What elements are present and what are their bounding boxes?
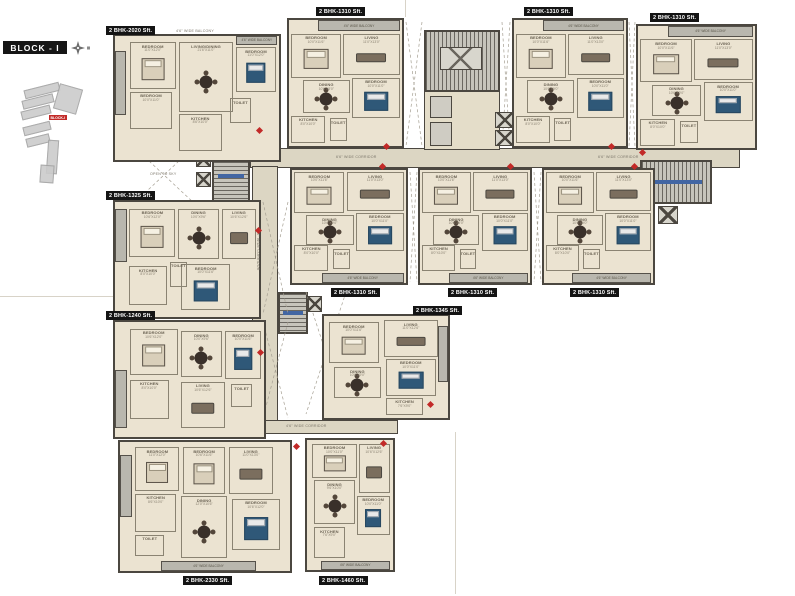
room: BEDROOM10'0"X11'0"	[605, 213, 651, 251]
balcony: 4'6" WIDE BALCONY	[668, 26, 752, 37]
room: KITCHEN8'0"X10'0"	[640, 119, 675, 146]
apartment-unit: 4'6" WIDE BALCONYBEDROOM10'0"X11'6"LIVIN…	[636, 24, 757, 150]
dimension-text: OPEN TO SKY	[150, 172, 176, 176]
unit-area-label: 2 BHK-1310 Sft.	[448, 288, 497, 297]
sofa-icon	[360, 190, 390, 199]
room: LIVING11'0"X13'0"	[568, 34, 624, 76]
guide-line	[405, 0, 406, 17]
bed-icon	[617, 226, 640, 243]
bed-icon	[398, 372, 423, 389]
room-name: TOILET	[171, 264, 186, 269]
balcony: 4'6" WIDE BALCONY	[322, 273, 404, 283]
bed-icon	[304, 49, 329, 69]
bed-icon	[364, 92, 388, 110]
setback-dashed-lines	[406, 22, 422, 146]
room: KITCHEN7'6"X9'0"	[314, 527, 345, 558]
room-dim: 10'0"X11'0"	[326, 451, 343, 454]
room-dim: 8'0"X10'0"	[300, 123, 315, 126]
room-dim: 8'0"X10'0"	[555, 252, 570, 255]
room-dim: 11'0"X13'0"	[715, 47, 732, 50]
room: TOILET	[230, 98, 251, 123]
bed-icon	[246, 63, 265, 83]
unit-area-label: 2 BHK-2330 Sft.	[183, 576, 232, 585]
room-dim: 10'0"X11'6"	[308, 41, 325, 44]
unit-area-label: 2 BHK-2020 Sft.	[106, 26, 155, 35]
room-dim: 10'0"X11'0"	[402, 366, 419, 369]
room: BEDROOM10'0"X11'6"	[225, 331, 261, 379]
sofa-icon	[239, 469, 262, 480]
bed-icon	[716, 96, 741, 114]
room-dim: 10'0"X11'6"	[532, 41, 549, 44]
room-dim: 10'6"X12'0"	[145, 336, 162, 339]
room: KITCHEN8'0"X10'0"	[422, 245, 455, 271]
room-dim: 8'0"X10'0"	[431, 252, 446, 255]
bed-icon	[558, 186, 582, 205]
sofa-icon	[708, 58, 739, 67]
room: BEDROOM10'0"X11'0"	[577, 78, 624, 118]
dining-table-icon	[195, 351, 208, 364]
room: TOILET	[135, 535, 164, 556]
room-dim: 8'6"X10'0"	[193, 121, 208, 124]
room: BEDROOM11'0"X12'0"	[236, 47, 275, 92]
room-dim: 11'0"X12'0"	[144, 49, 161, 52]
room: BEDROOM10'0"X11'0"	[352, 78, 399, 118]
room-dim: 12'0"X10'6"	[195, 503, 212, 506]
unit-area-label: 2 BHK-1345 Sft.	[413, 306, 462, 315]
block-title-ribbon: BLOCK - I	[3, 41, 67, 54]
room: KITCHEN8'0"X10'0"	[516, 116, 550, 144]
stair-mid-landing	[650, 180, 702, 184]
room-dim: 11'0"X12'6"	[402, 327, 419, 330]
room: BEDROOM10'6"X11'6"	[183, 447, 226, 493]
room-dim: 10'6"X9'0"	[543, 88, 558, 91]
room-dim: 10'6"X12'6"	[194, 389, 211, 392]
dining-table-icon	[192, 232, 205, 245]
dining-table-icon	[670, 96, 683, 109]
setback-dashed-lines	[410, 172, 417, 282]
unit-area-label: 2 BHK-1325 Sft.	[106, 191, 155, 200]
room-dim: 21'6"X11'0"	[197, 49, 214, 52]
utility-cell	[430, 122, 452, 146]
room: TOILET	[460, 249, 477, 269]
site-plan-highlight: BLOCK-I	[49, 115, 67, 120]
balcony-label: 4'6" WIDE BALCONY	[596, 276, 627, 280]
room-dim: 11'0"X13'0"	[615, 179, 632, 182]
dining-table-icon	[450, 226, 463, 239]
room-name: TOILET	[331, 121, 346, 126]
room: BEDROOM10'6"X12'0"	[130, 329, 178, 375]
room-dim: 10'6"X12'6"	[365, 451, 382, 454]
bed-icon	[234, 348, 252, 370]
apartment-unit: 4'6" WIDE BALCONYBEDROOM10'0"X11'6"LIVIN…	[418, 168, 532, 285]
room-dim: 10'0"X11'6"	[197, 271, 214, 274]
room-dim: 8'6"X10'0"	[148, 501, 163, 504]
room-dim: 10'6"X12'0"	[144, 216, 161, 219]
room: DINING10'6"X9'0"	[652, 85, 701, 117]
room: DINING10'0"X9'0"	[334, 367, 381, 398]
setback-dashed-lines	[534, 172, 541, 282]
room-dim: 11'0"X13'0"	[587, 41, 604, 44]
apartment-unit: BEDROOM10'6"X12'0"DINING10'0"X9'6"LIVING…	[113, 200, 261, 319]
room: BEDROOM10'0"X11'0"	[356, 213, 404, 251]
room-dim: 10'0"X11'0"	[371, 220, 388, 223]
apartment-unit: 4'6" WIDE BALCONYBEDROOM11'0"X12'0"LIVIN…	[113, 34, 281, 162]
room-dim: 10'0"X11'0"	[592, 85, 609, 88]
apartment-unit: BEDROOM10'6"X12'0"DINING10'0"X9'6"BEDROO…	[113, 320, 266, 439]
balcony: 4'6" WIDE BALCONY	[572, 273, 650, 283]
room: BEDROOM10'0"X11'0"	[482, 213, 528, 251]
room-dim: 11'0"X13'0"	[492, 179, 509, 182]
room: KITCHEN8'0"X10'0"	[130, 380, 169, 419]
setback-dashed-lines	[263, 322, 288, 418]
bed-icon	[244, 517, 268, 541]
sofa-icon	[191, 403, 214, 414]
room-dim: 8'0"X10'0"	[304, 252, 319, 255]
room-dim: 10'0"X11'0"	[720, 89, 737, 92]
room-name: TOILET	[460, 252, 475, 257]
dining-table-icon	[544, 93, 557, 106]
balcony-label: 4'6" WIDE BALCONY	[193, 564, 224, 568]
room: TOILET	[170, 262, 187, 287]
bed-icon	[142, 345, 166, 366]
room: TOILET	[330, 118, 347, 141]
balcony-label: 4'6" WIDE BALCONY	[242, 38, 273, 42]
unit-area-label: 2 BHK-1240 Sft.	[106, 311, 155, 320]
sofa-icon	[230, 232, 248, 244]
stair-mid-landing	[218, 174, 244, 178]
bed-icon	[368, 226, 392, 243]
balcony	[438, 326, 448, 382]
site-plan-building	[39, 165, 54, 184]
room: LIVING11'0"X13'0"	[596, 172, 651, 210]
lift	[658, 206, 678, 224]
room-dim: 11'0"X12'0"	[149, 454, 166, 457]
room-dim: 8'0"X10'0"	[525, 123, 540, 126]
room: BEDROOM10'0"X11'6"	[516, 34, 565, 78]
dining-table-icon	[320, 93, 333, 106]
room-dim: 10'0"X9'6"	[194, 338, 209, 341]
room: KITCHEN8'0"X10'0"	[129, 266, 166, 305]
room-dim: 10'0"X11'0"	[143, 99, 160, 102]
block-title: BLOCK - I	[10, 43, 59, 53]
room: BEDROOM10'6"X12'0"	[232, 499, 280, 551]
unit-area-label: 2 BHK-1310 Sft.	[570, 288, 619, 297]
apartment-unit: 4'6" WIDE BALCONYBEDROOM10'0"X11'6"LIVIN…	[512, 18, 628, 148]
bed-icon	[323, 456, 345, 471]
dimension-text: 6'6" WIDE CORRIDOR	[336, 155, 377, 159]
room-dim: 10'6"X9'0"	[669, 92, 684, 95]
room: KITCHEN7'6"X9'0"	[386, 398, 423, 415]
room: BEDROOM10'0"X11'0"	[386, 359, 436, 396]
room: BEDROOM10'0"X11'6"	[546, 172, 594, 213]
plan-layer: 4'6" WIDE BALCONYBEDROOM11'0"X12'0"LIVIN…	[0, 0, 795, 596]
stair-landing-x	[440, 47, 482, 70]
dimension-text: 4'6" WIDE BALCONY	[176, 29, 214, 33]
sofa-icon	[396, 337, 425, 345]
room-dim: 10'0"X11'0"	[365, 503, 382, 506]
room-dim: 8'0"X10'0"	[142, 387, 157, 390]
apartment-unit: 4'6" WIDE BALCONYBEDROOM10'0"X11'6"LIVIN…	[287, 18, 404, 148]
room-dim: 8'0"X10'0"	[650, 126, 665, 129]
dimension-text: 6'6" WIDE CORRIDOR	[256, 230, 260, 271]
utility-cell	[430, 96, 452, 118]
dining-table-icon	[198, 525, 211, 538]
room: DINING10'6"X9'0"	[306, 215, 354, 244]
room-dim: 11'0"X13'0"	[367, 179, 384, 182]
room-name: TOILET	[234, 387, 249, 392]
room-dim: 7'6"X9'0"	[323, 534, 337, 537]
room-dim: 10'0"X11'6"	[235, 338, 252, 341]
bed-icon	[653, 54, 679, 74]
room: LIVING11'0"X13'0"	[343, 34, 400, 76]
room: DINING10'6"X9'0"	[557, 215, 603, 244]
room-dim: 9'6"X10'0"	[327, 487, 342, 490]
bed-icon	[365, 509, 381, 527]
room: BEDROOM10'0"X11'0"	[357, 496, 390, 535]
sofa-icon	[581, 53, 611, 62]
unit-area-label: 2 BHK-1460 Sft.	[319, 576, 368, 585]
room-name: TOILET	[233, 101, 248, 106]
setback-dashed-lines	[629, 22, 635, 146]
room: LIVING10'6"X12'6"	[181, 382, 226, 428]
room: BEDROOM10'0"X11'6"	[294, 172, 344, 213]
room: LIVING11'0"X13'0"	[229, 447, 273, 493]
bed-icon	[194, 280, 218, 301]
bed-icon	[434, 186, 458, 205]
room: KITCHEN8'0"X10'0"	[546, 245, 579, 271]
room-dim: 10'0"X9'6"	[191, 216, 206, 219]
room-name: TOILET	[682, 124, 697, 129]
room: LIVING11'0"X13'0"	[347, 172, 404, 210]
room: LIVING11'0"X13'0"	[473, 172, 528, 210]
dining-table-icon	[351, 378, 364, 391]
room-dim: 7'6"X9'0"	[398, 405, 412, 408]
balcony-label: 4'6" WIDE BALCONY	[568, 24, 599, 28]
bed-icon	[493, 226, 516, 243]
room-dim: 10'6"X11'6"	[196, 454, 213, 457]
dining-table-icon	[328, 499, 341, 512]
dimension-text: 6'6" WIDE CORRIDOR	[598, 155, 639, 159]
balcony: 4'6" WIDE BALCONY	[449, 273, 528, 283]
room-name: TOILET	[142, 537, 157, 542]
room-dim: 10'0"X11'0"	[496, 220, 513, 223]
room: BEDROOM10'0"X11'0"	[312, 444, 357, 478]
balcony: 4'6" WIDE BALCONY	[236, 36, 277, 45]
room-dim: 10'0"X11'0"	[367, 85, 384, 88]
sofa-icon	[357, 53, 387, 62]
dimension-text: 4'6" WIDE CORRIDOR	[286, 424, 327, 428]
room-dim: 8'0"X10'0"	[140, 273, 155, 276]
bed-icon	[341, 336, 366, 355]
room: BEDROOM11'0"X12'0"	[130, 42, 176, 89]
setback-dashed-lines	[263, 202, 288, 314]
room: TOILET	[333, 249, 350, 269]
balcony: 4'6" WIDE BALCONY	[161, 561, 256, 571]
room: TOILET	[680, 121, 698, 143]
room: TOILET	[231, 384, 252, 407]
apartment-unit: 4'6" WIDE BALCONYBEDROOM10'0"X11'6"LIVIN…	[290, 168, 408, 285]
room: DINING10'0"X9'6"	[178, 209, 218, 260]
room-name: TOILET	[334, 252, 349, 257]
room-dim: 10'0"X11'6"	[658, 47, 675, 50]
sofa-icon	[486, 190, 515, 199]
bed-icon	[194, 463, 215, 484]
room-dim: 10'0"X11'6"	[345, 329, 362, 332]
balcony-label: 4'6" WIDE BALCONY	[695, 29, 726, 33]
balcony-label: 4'6" WIDE BALCONY	[347, 276, 378, 280]
balcony	[120, 455, 132, 517]
room: DINING10'6"X9'0"	[527, 80, 574, 113]
bed-icon	[529, 49, 554, 69]
room: TOILET	[583, 249, 599, 269]
balcony: 4'6" WIDE BALCONY	[321, 561, 390, 570]
sofa-icon	[609, 190, 638, 199]
bed-icon	[589, 92, 612, 110]
room-dim: 10'0"X11'6"	[562, 179, 579, 182]
room: KITCHEN8'0"X10'0"	[294, 245, 328, 271]
apartment-unit: 4'6" WIDE BALCONYBEDROOM10'0"X11'6"LIVIN…	[542, 168, 655, 285]
unit-entry-marker	[293, 443, 300, 450]
bed-icon	[141, 226, 164, 248]
unit-area-label: 2 BHK-1310 Sft.	[650, 13, 699, 22]
room: LIVING11'0"X13'0"	[694, 39, 753, 79]
compass-icon	[69, 40, 91, 56]
room-dim: 10'6"X9'0"	[322, 222, 337, 225]
lift	[196, 172, 211, 187]
unit-area-label: 2 BHK-1310 Sft.	[331, 288, 380, 297]
room: DINING10'0"X9'6"	[181, 331, 223, 377]
room-dim: 10'6"X9'0"	[572, 222, 587, 225]
guide-line	[0, 296, 113, 297]
room-dim: 11'0"X13'0"	[363, 41, 380, 44]
balcony	[115, 51, 126, 115]
apartment-unit: 4'6" WIDE BALCONYBEDROOM11'0"X12'0"BEDRO…	[118, 440, 292, 573]
room: DINING9'6"X10'0"	[314, 480, 355, 524]
room-dim: 11'0"X13'0"	[242, 454, 259, 457]
guide-line	[455, 432, 456, 594]
room: BEDROOM10'0"X11'6"	[640, 39, 691, 82]
room: TOILET	[554, 118, 571, 141]
room: BEDROOM10'0"X11'0"	[704, 82, 753, 121]
room: BEDROOM10'6"X12'0"	[129, 209, 175, 257]
bed-icon	[141, 59, 164, 81]
lift	[308, 296, 322, 312]
room-dim: 10'0"X11'0"	[619, 220, 636, 223]
room: BEDROOM10'0"X11'6"	[181, 264, 230, 310]
room: LIVING11'0"X12'6"	[384, 320, 439, 357]
balcony: 4'6" WIDE BALCONY	[318, 20, 399, 31]
apartment-unit: 4'6" WIDE BALCONYBEDROOM10'0"X11'0"LIVIN…	[305, 438, 395, 572]
bed-icon	[307, 186, 332, 205]
dining-table-icon	[323, 226, 336, 239]
room-name: TOILET	[584, 252, 599, 257]
room: KITCHEN8'6"X10'0"	[179, 114, 222, 151]
room-dim: 10'0"X11'6"	[438, 179, 455, 182]
room: BEDROOM10'0"X11'0"	[130, 92, 173, 129]
room: DINING10'6"X9'0"	[433, 215, 479, 244]
dining-table-icon	[200, 76, 213, 89]
room-dim: 10'6"X9'0"	[319, 88, 334, 91]
room: KITCHEN8'6"X10'0"	[135, 494, 176, 533]
room-dim: 10'6"X12'0"	[247, 506, 264, 509]
room: LIVING/DINING21'6"X11'0"	[179, 42, 233, 111]
room-dim: 11'0"X12'0"	[248, 54, 265, 57]
room-dim: 10'6"X9'0"	[449, 222, 464, 225]
room-dim: 10'0"X9'0"	[350, 374, 365, 377]
room: DINING12'0"X10'6"	[181, 496, 227, 558]
room: KITCHEN8'0"X10'0"	[291, 116, 325, 144]
balcony: 4'6" WIDE BALCONY	[543, 20, 624, 31]
balcony-label: 4'6" WIDE BALCONY	[340, 563, 371, 567]
room-dim: 10'6"X12'6"	[230, 216, 247, 219]
dining-table-icon	[573, 226, 586, 239]
room: BEDROOM11'0"X12'0"	[135, 447, 179, 491]
balcony	[115, 370, 127, 428]
room: DINING10'6"X9'0"	[303, 80, 350, 113]
room: BEDROOM10'0"X11'6"	[291, 34, 341, 78]
unit-area-label: 2 BHK-1310 Sft.	[524, 7, 573, 16]
staircase	[424, 30, 500, 92]
room: LIVING10'6"X12'6"	[359, 444, 390, 493]
room-name: TOILET	[555, 121, 570, 126]
room: BEDROOM10'0"X11'6"	[422, 172, 470, 213]
balcony-label: 4'6" WIDE BALCONY	[473, 276, 504, 280]
balcony-label: 4'6" WIDE BALCONY	[344, 24, 375, 28]
sofa-icon	[366, 467, 382, 478]
room-dim: 10'0"X11'6"	[311, 179, 328, 182]
balcony	[115, 209, 127, 262]
bed-icon	[146, 462, 168, 482]
floor-plan-sheet: BLOCK - I 4'6" WIDE BALCONYBEDROOM11'0"X…	[0, 0, 795, 596]
unit-area-label: 2 BHK-1310 Sft.	[316, 7, 365, 16]
room: BEDROOM10'0"X11'6"	[329, 322, 379, 363]
room: LIVING10'6"X12'6"	[222, 209, 257, 260]
